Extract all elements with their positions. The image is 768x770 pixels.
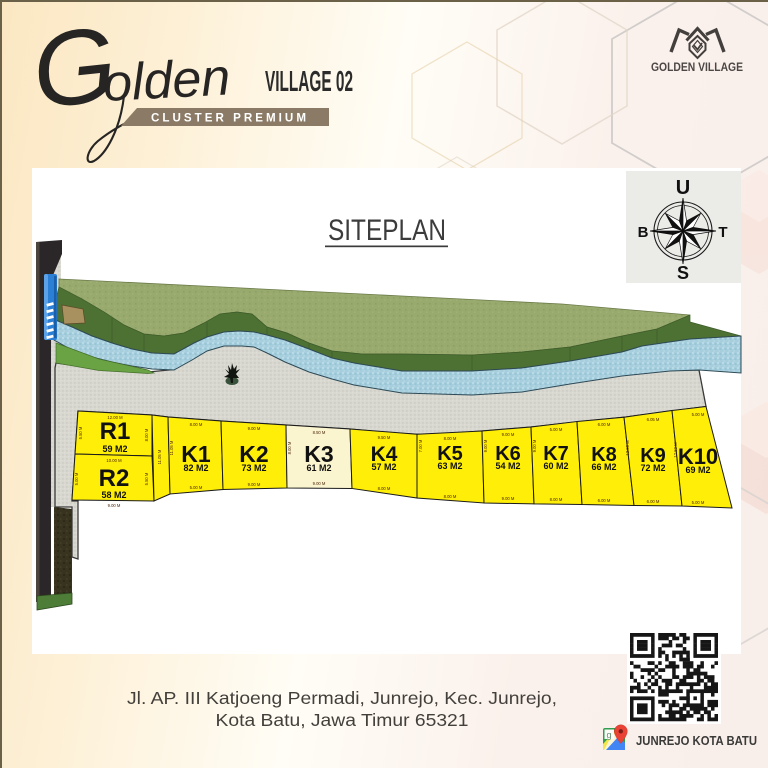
svg-text:60 M2: 60 M2 [543, 461, 568, 471]
svg-text:9.00 M: 9.00 M [108, 503, 121, 508]
svg-text:SITEPLAN: SITEPLAN [328, 214, 446, 247]
svg-text:8.00 M: 8.00 M [287, 441, 292, 454]
svg-text:11.05 M: 11.05 M [157, 449, 162, 464]
svg-text:U: U [676, 177, 690, 199]
svg-text:73 M2: 73 M2 [241, 463, 266, 473]
svg-text:61 M2: 61 M2 [306, 463, 331, 473]
svg-text:66 M2: 66 M2 [591, 462, 616, 472]
svg-text:12.00 M: 12.00 M [625, 440, 630, 456]
svg-text:S: S [677, 263, 689, 283]
svg-text:63 M2: 63 M2 [437, 461, 462, 471]
svg-text:8.00 M: 8.00 M [444, 494, 457, 499]
svg-text:59 M2: 59 M2 [102, 444, 127, 454]
svg-text:6.05 M: 6.05 M [647, 417, 660, 422]
svg-text:8.00 M: 8.00 M [144, 428, 149, 441]
svg-text:5.00 M: 5.00 M [550, 427, 563, 432]
svg-text:6.00 M: 6.00 M [598, 422, 611, 427]
svg-text:VILLAGE 02: VILLAGE 02 [265, 66, 353, 98]
svg-text:5.00 M: 5.00 M [692, 412, 705, 417]
svg-text:72 M2: 72 M2 [640, 463, 665, 473]
svg-text:6.00 M: 6.00 M [598, 498, 611, 503]
svg-text:JUNREJO KOTA BATU: JUNREJO KOTA BATU [636, 733, 757, 748]
svg-text:69 M2: 69 M2 [685, 465, 710, 475]
svg-text:Kota Batu, Jawa Timur 65321: Kota Batu, Jawa Timur 65321 [216, 710, 469, 730]
svg-text:8.00 M: 8.00 M [378, 486, 391, 491]
svg-text:11.05 M: 11.05 M [169, 440, 174, 455]
svg-text:8.00 M: 8.00 M [444, 436, 457, 441]
svg-text:5.00 M: 5.00 M [190, 485, 203, 490]
svg-text:8.00 M: 8.00 M [190, 422, 203, 427]
svg-text:Jl. AP. III Katjoeng Permadi,: Jl. AP. III Katjoeng Permadi, Junrejo, K… [127, 688, 557, 708]
svg-text:9.00 M: 9.00 M [248, 482, 261, 487]
svg-text:54 M2: 54 M2 [495, 461, 520, 471]
svg-text:T: T [718, 224, 727, 241]
svg-text:10.00 M: 10.00 M [106, 458, 122, 463]
svg-text:5.50 M: 5.50 M [78, 426, 83, 439]
svg-text:12.00 M: 12.00 M [107, 415, 123, 420]
svg-text:7.00 M: 7.00 M [418, 439, 423, 452]
svg-text:82 M2: 82 M2 [183, 463, 208, 473]
svg-text:R2: R2 [99, 465, 130, 492]
svg-text:9.50 M: 9.50 M [378, 435, 391, 440]
svg-text:9.00 M: 9.00 M [248, 426, 261, 431]
svg-text:CLUSTER PREMIUM: CLUSTER PREMIUM [151, 113, 309, 125]
svg-text:9.00 M: 9.00 M [502, 496, 515, 501]
svg-text:9.00 M: 9.00 M [483, 439, 488, 452]
svg-text:g: g [606, 730, 611, 740]
svg-text:9.00 M: 9.00 M [502, 432, 515, 437]
svg-text:5.50 M: 5.50 M [144, 472, 149, 485]
svg-text:GOLDEN VILLAGE: GOLDEN VILLAGE [651, 60, 743, 74]
svg-text:12.50 M: 12.50 M [673, 442, 678, 458]
svg-text:8.50 M: 8.50 M [313, 430, 326, 435]
svg-text:58 M2: 58 M2 [101, 490, 126, 500]
svg-text:57 M2: 57 M2 [371, 462, 396, 472]
svg-text:9.00 M: 9.00 M [313, 481, 326, 486]
svg-text:6.00 M: 6.00 M [647, 499, 660, 504]
svg-text:5.00 M: 5.00 M [74, 472, 79, 485]
svg-text:B: B [638, 224, 649, 241]
svg-text:R1: R1 [100, 418, 131, 445]
svg-text:olden: olden [102, 48, 232, 113]
svg-text:8.00 M: 8.00 M [550, 497, 563, 502]
svg-text:9.00 M: 9.00 M [532, 439, 537, 452]
svg-text:5.00 M: 5.00 M [692, 500, 705, 505]
